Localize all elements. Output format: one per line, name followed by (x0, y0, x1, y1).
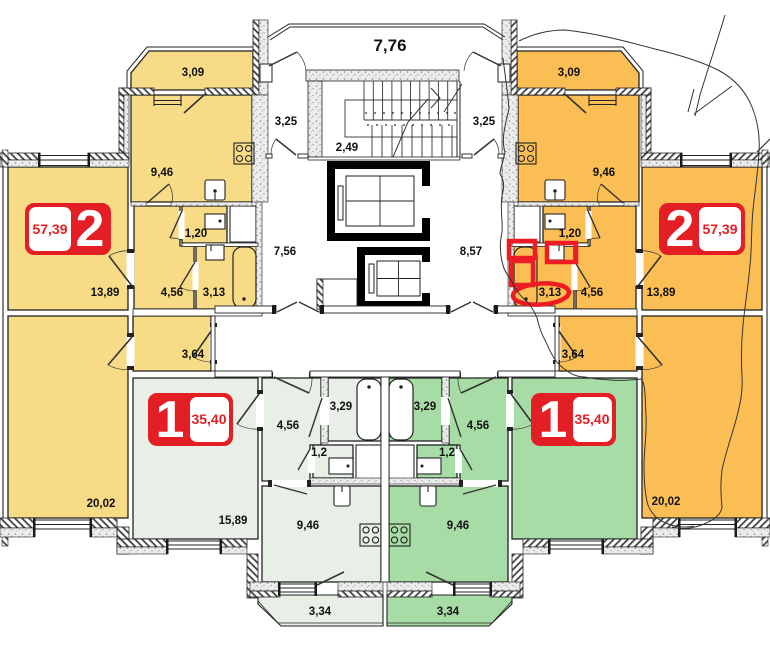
svg-text:13,89: 13,89 (647, 287, 676, 299)
svg-text:9,46: 9,46 (297, 520, 319, 532)
svg-text:1,2: 1,2 (439, 447, 455, 459)
svg-text:1: 1 (539, 391, 568, 449)
svg-text:3,09: 3,09 (182, 67, 204, 79)
svg-text:3,34: 3,34 (309, 606, 332, 618)
svg-text:8,57: 8,57 (460, 246, 482, 258)
svg-text:2: 2 (666, 200, 695, 258)
svg-text:9,46: 9,46 (151, 167, 173, 179)
svg-text:3,09: 3,09 (558, 67, 580, 79)
svg-text:4,56: 4,56 (277, 420, 299, 432)
svg-text:20,02: 20,02 (87, 498, 116, 510)
svg-text:7,76: 7,76 (373, 36, 406, 55)
svg-text:3,29: 3,29 (414, 401, 436, 413)
svg-text:3,13: 3,13 (539, 287, 561, 299)
svg-text:3,34: 3,34 (437, 606, 460, 618)
svg-text:3,29: 3,29 (330, 401, 352, 413)
svg-text:2,49: 2,49 (336, 142, 358, 154)
svg-text:1,20: 1,20 (559, 228, 581, 240)
svg-text:2: 2 (76, 200, 105, 258)
svg-text:9,46: 9,46 (593, 167, 615, 179)
svg-text:13,89: 13,89 (91, 287, 120, 299)
svg-text:1: 1 (156, 391, 185, 449)
svg-text:4,56: 4,56 (467, 420, 489, 432)
svg-text:4,56: 4,56 (161, 287, 183, 299)
svg-text:4,56: 4,56 (581, 287, 603, 299)
svg-text:3,13: 3,13 (203, 287, 225, 299)
svg-text:1,2: 1,2 (311, 447, 327, 459)
svg-text:57,39: 57,39 (32, 221, 67, 237)
svg-text:3,25: 3,25 (275, 116, 298, 128)
svg-text:35,40: 35,40 (191, 411, 226, 427)
svg-text:7,56: 7,56 (274, 246, 296, 258)
svg-text:15,89: 15,89 (219, 515, 248, 527)
svg-text:20,02: 20,02 (652, 496, 681, 508)
svg-text:3,25: 3,25 (473, 116, 496, 128)
svg-text:3,64: 3,64 (182, 349, 205, 361)
svg-text:9,46: 9,46 (447, 520, 469, 532)
svg-text:3,64: 3,64 (562, 349, 585, 361)
svg-text:35,40: 35,40 (574, 411, 609, 427)
svg-text:57,39: 57,39 (702, 221, 737, 237)
svg-text:1,20: 1,20 (185, 228, 207, 240)
